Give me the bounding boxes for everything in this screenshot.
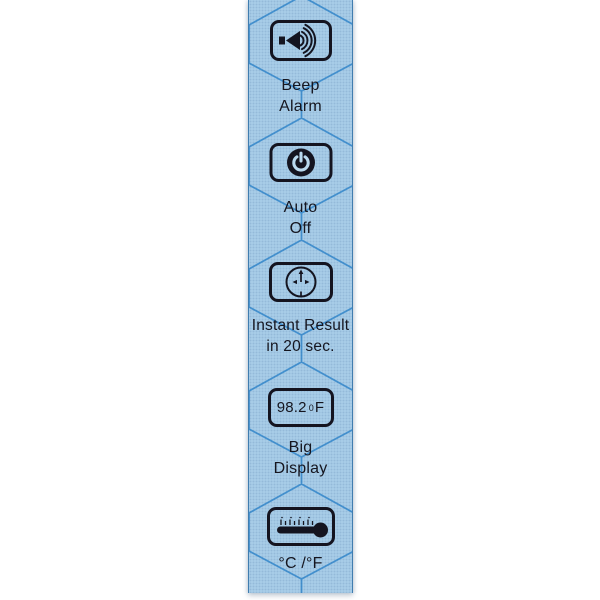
thermometer-feature-label-strip: Beep Alarm Auto Off: [248, 0, 353, 593]
power-icon: [272, 146, 329, 179]
instant-result-label: Instant Result in 20 sec.: [249, 315, 352, 357]
label-line: Off: [249, 218, 352, 239]
thermometer-icon: [270, 510, 332, 543]
display-number: 98.2: [277, 399, 307, 416]
beep-alarm-label: Beep Alarm: [249, 75, 352, 117]
label-line: °C /°F: [249, 553, 352, 574]
label-line: Auto: [249, 197, 352, 218]
big-display-label: Big Display: [249, 437, 352, 479]
label-line: in 20 sec.: [249, 336, 352, 357]
label-line: Display: [249, 458, 352, 479]
label-line: Beep: [249, 75, 352, 96]
big-display-box: 98.20F: [268, 388, 334, 427]
clock-timer-icon: [272, 265, 330, 299]
instant-result-icon-box: [269, 262, 333, 302]
speaker-sound-waves-icon: [273, 23, 329, 58]
page-background: Beep Alarm Auto Off: [0, 0, 600, 600]
auto-off-icon-box: [269, 143, 332, 182]
beep-alarm-icon-box: [270, 20, 332, 61]
label-line: Instant Result: [249, 315, 352, 336]
temp-unit-label: °C /°F: [249, 553, 352, 574]
temp-unit-icon-box: [267, 507, 335, 546]
label-line: Alarm: [249, 96, 352, 117]
display-unit: F: [315, 399, 324, 416]
auto-off-label: Auto Off: [249, 197, 352, 239]
label-line: Big: [249, 437, 352, 458]
